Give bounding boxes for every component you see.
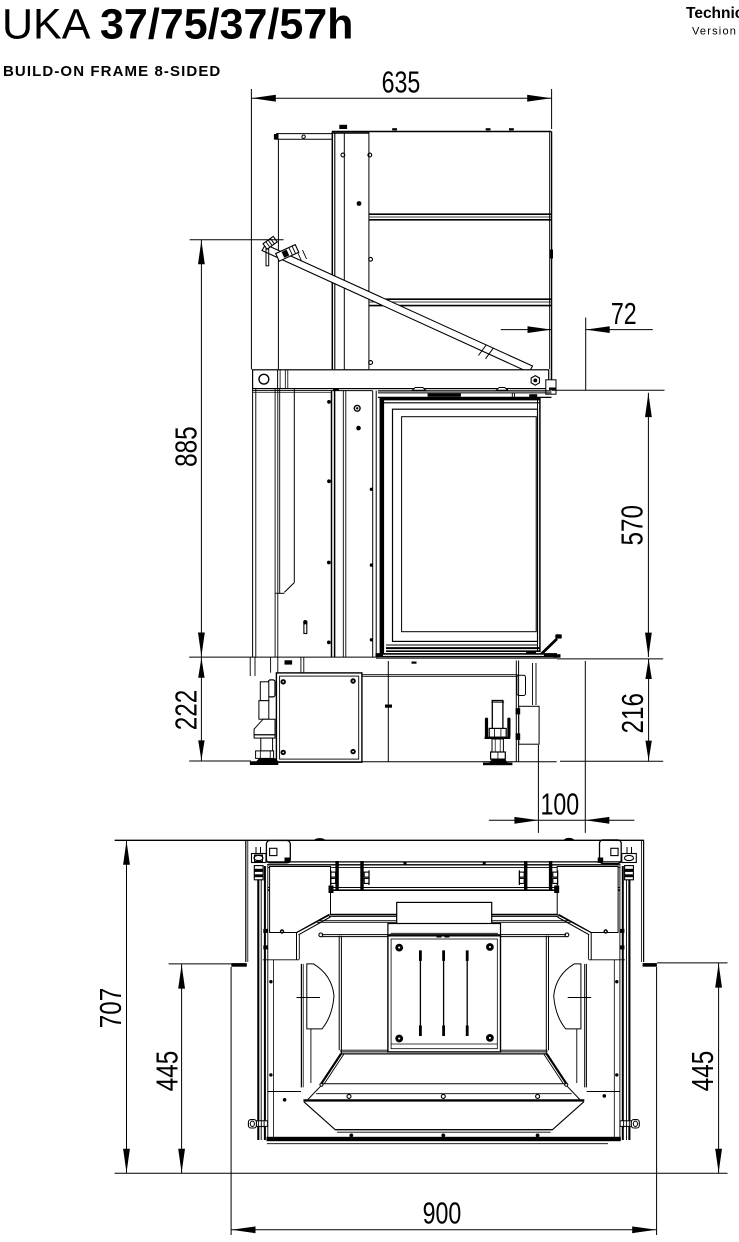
svg-text:100: 100 <box>540 786 579 821</box>
svg-text:216: 216 <box>615 693 650 734</box>
svg-text:635: 635 <box>382 65 421 100</box>
svg-text:222: 222 <box>169 690 204 731</box>
svg-text:BUILD-ON FRAME 8-SIDED: BUILD-ON FRAME 8-SIDED <box>3 63 221 80</box>
svg-text:570: 570 <box>615 505 650 546</box>
svg-text:885: 885 <box>169 426 204 467</box>
svg-text:Technical: Technical <box>686 5 739 22</box>
svg-text:72: 72 <box>611 296 637 331</box>
svg-text:445: 445 <box>685 1051 720 1092</box>
svg-text:UKA 37/75/37/57h: UKA 37/75/37/57h <box>2 0 353 48</box>
svg-text:707: 707 <box>93 988 128 1029</box>
svg-text:900: 900 <box>423 1196 462 1231</box>
svg-text:445: 445 <box>150 1051 185 1092</box>
svg-text:Version 24: Version 24 <box>692 26 739 38</box>
